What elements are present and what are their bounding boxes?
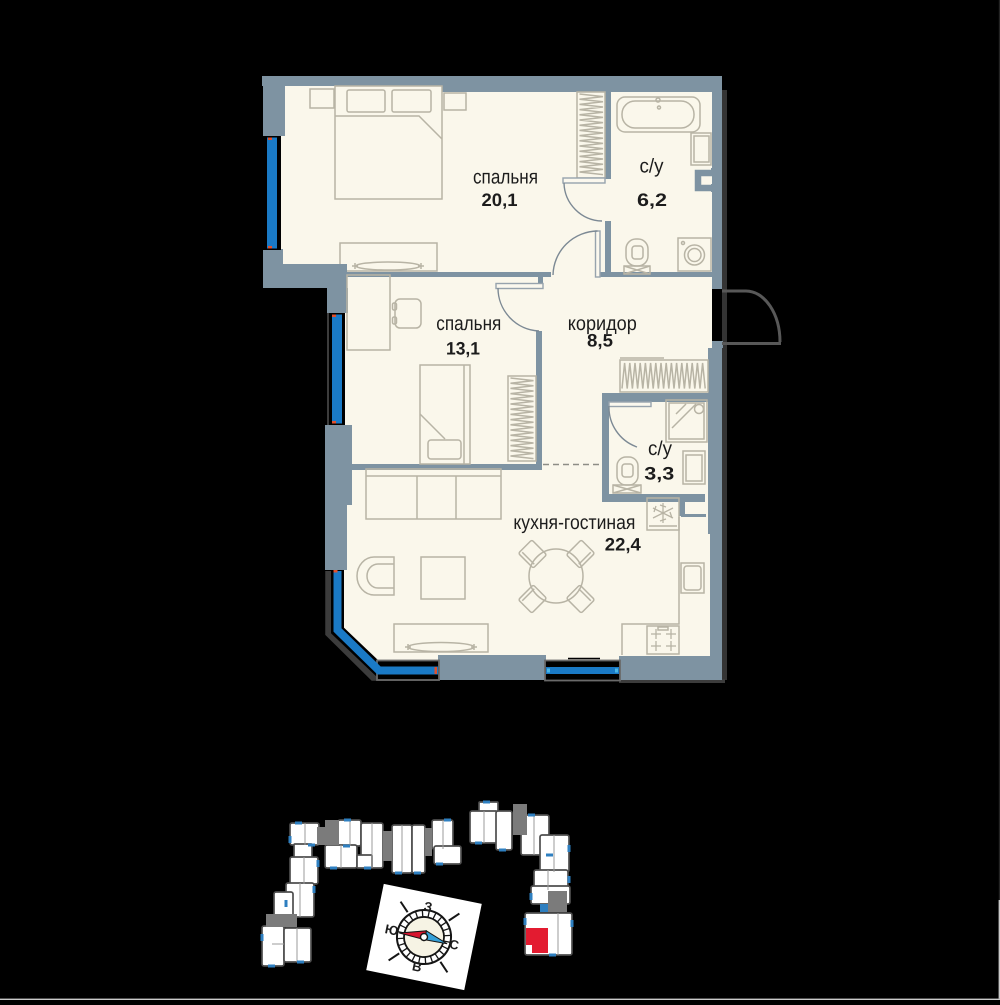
svg-text:13,1: 13,1 [446, 339, 480, 359]
svg-text:спальня: спальня [473, 167, 538, 189]
svg-text:спальня: спальня [436, 313, 501, 335]
svg-text:8,5: 8,5 [587, 331, 613, 351]
svg-text:с/у: с/у [648, 438, 672, 460]
svg-text:с/у: с/у [640, 156, 664, 178]
svg-text:6,2: 6,2 [637, 190, 667, 210]
svg-text:20,1: 20,1 [482, 190, 518, 210]
svg-text:кухня-гостиная: кухня-гостиная [513, 512, 635, 534]
svg-text:22,4: 22,4 [605, 535, 641, 555]
svg-text:3,3: 3,3 [644, 464, 674, 484]
